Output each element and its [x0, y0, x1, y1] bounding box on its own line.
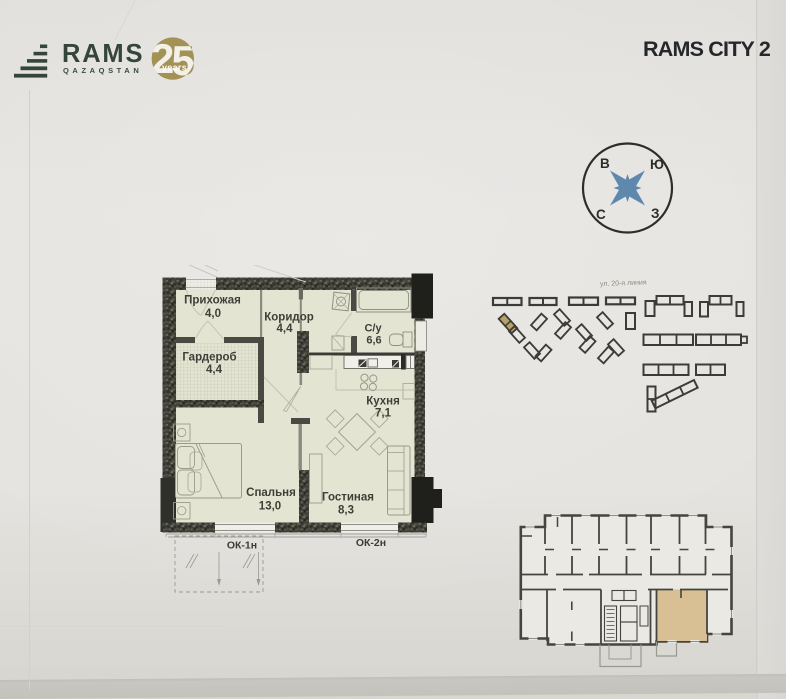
svg-text:Спальня: Спальня [246, 487, 296, 499]
svg-text:З: З [651, 206, 659, 221]
svg-text:4,4: 4,4 [277, 323, 294, 335]
svg-text:С/у: С/у [364, 323, 382, 335]
svg-text:13,0: 13,0 [259, 501, 281, 513]
svg-text:years: years [162, 63, 187, 73]
svg-text:В: В [600, 156, 610, 171]
svg-text:Коридор: Коридор [264, 312, 314, 324]
svg-text:Кухня: Кухня [366, 396, 400, 408]
svg-text:8,3: 8,3 [338, 505, 354, 517]
svg-text:Гостиная: Гостиная [322, 492, 374, 504]
svg-text:4,0: 4,0 [205, 308, 221, 320]
svg-text:ОК-2н: ОК-2н [356, 537, 386, 549]
svg-text:ул. 20-я линия: ул. 20-я линия [600, 279, 647, 288]
svg-text:Прихожая: Прихожая [184, 295, 241, 307]
svg-text:С: С [596, 207, 606, 222]
svg-text:Гардероб: Гардероб [182, 352, 236, 364]
svg-text:Ю: Ю [650, 157, 664, 172]
svg-text:6,6: 6,6 [366, 335, 381, 347]
svg-text:ОК-1н: ОК-1н [227, 540, 257, 552]
svg-text:7,1: 7,1 [375, 408, 392, 420]
svg-text:4,4: 4,4 [206, 364, 223, 376]
